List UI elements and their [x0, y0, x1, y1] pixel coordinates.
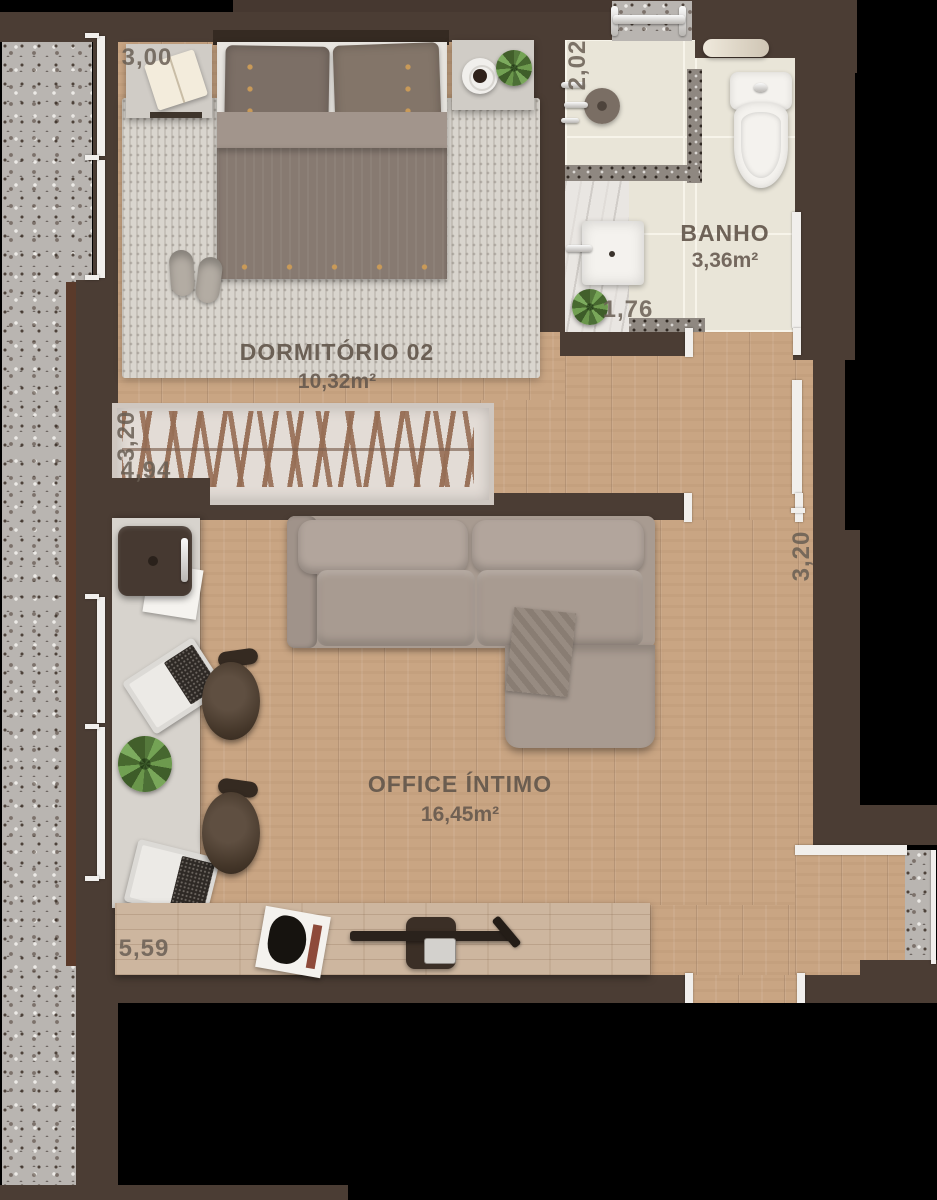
closet-rod [122, 448, 474, 451]
desk-plant [118, 736, 172, 792]
office-window-lower [97, 727, 105, 879]
sink-drain [609, 251, 615, 257]
tv-bracket [424, 938, 456, 964]
shower-arm [564, 102, 588, 108]
magazine-title-strip [306, 924, 323, 969]
sofa-back-cushion-left [298, 520, 468, 574]
dormitorio-area: 10,32m² [207, 371, 467, 392]
sink-faucet [566, 245, 592, 252]
bathroom-shelf [703, 39, 769, 57]
office-chair-1 [202, 662, 260, 740]
dimension-office-width: 5,59 [114, 936, 174, 962]
dimension-office-depth: 3,20 [790, 528, 814, 584]
floor-plan: DORMITÓRIO 02 10,32m² BANHO 3,36m² OFFIC… [0, 0, 937, 1200]
office-window-upper [97, 597, 105, 723]
bottom-door-jamb-left [685, 973, 693, 1003]
nightstand-left-handle [150, 112, 202, 118]
sofa-back-cushion-right [472, 520, 644, 572]
office-area: 16,45m² [330, 804, 590, 825]
bedroom-window-upper [97, 36, 105, 156]
bathroom-door-jamb-right [793, 328, 801, 355]
dimension-bath-width: 1,76 [596, 298, 660, 322]
towel-rail [613, 15, 685, 24]
magazine-cover-figure [264, 913, 310, 967]
wall-bottom-left-strip [0, 1185, 348, 1200]
wall-bottom-right-corner [860, 960, 937, 1003]
throw-blanket [506, 607, 576, 697]
office-chair-2 [202, 792, 260, 874]
dimension-tick-shower-bottom [561, 118, 579, 123]
wall-office-right [813, 530, 860, 845]
window-right-frame [931, 850, 936, 964]
corridor-door-leaf [792, 380, 802, 494]
office-floor-nook [795, 845, 905, 975]
bedroom-window-sill-bottom [85, 275, 99, 280]
dimension-closet-depth: 3,20 [115, 408, 139, 464]
doorway-bottom-opening [692, 975, 797, 1003]
wall-bathroom-right [793, 0, 855, 360]
bedroom-window-sill-mid [85, 155, 99, 160]
sofa-seat-left [317, 570, 475, 646]
office-door-jamb-left [684, 493, 692, 522]
wall-closet-step-overlay [100, 478, 210, 520]
banho-area: 3,36m² [625, 250, 825, 271]
bathroom-door-jamb-left [685, 328, 693, 357]
duvet-buttons [222, 262, 444, 274]
toilet-seat [741, 112, 781, 178]
coffee-cup [462, 58, 498, 94]
wall-office-right-ext [843, 805, 937, 845]
shower-curb [565, 165, 700, 181]
bedroom-window-sill-top [85, 33, 99, 38]
nightstand-plant [496, 50, 532, 86]
office-window-sill-bottom [85, 876, 99, 881]
hallway-floor [565, 330, 820, 520]
dimension-closet-width: 4,94 [116, 458, 176, 484]
pillow-left-buttons [246, 56, 254, 120]
office-floor-right [650, 905, 795, 975]
office-window-sill-top [85, 594, 99, 599]
bottom-door-jamb-right [797, 973, 805, 1003]
magazine [255, 906, 331, 979]
office-window-sill-mid [85, 724, 99, 729]
banho-label: BANHO [625, 222, 825, 245]
dimension-bed-wall: 3,00 [117, 45, 177, 71]
wall-bathroom-bottom [560, 330, 692, 356]
bedroom-window-lower [97, 160, 105, 278]
dimension-tick-right [791, 508, 805, 513]
window-bottom-right [795, 845, 907, 855]
bed-duvet [217, 148, 447, 279]
office-label: OFFICE ÍNTIMO [330, 773, 590, 796]
printer [118, 526, 192, 596]
dormitorio-label: DORMITÓRIO 02 [207, 341, 467, 364]
wall-corridor-right [813, 355, 845, 535]
slipper-left [168, 249, 195, 297]
toilet-flush-button [754, 83, 767, 92]
printer-button [148, 556, 158, 566]
bed-folded-sheet [217, 112, 447, 150]
pillow-right-buttons [404, 56, 412, 116]
dimension-shower-depth: 2,02 [566, 37, 590, 93]
shower-head [584, 88, 620, 124]
coffee [473, 69, 487, 83]
printer-trim [181, 538, 188, 582]
